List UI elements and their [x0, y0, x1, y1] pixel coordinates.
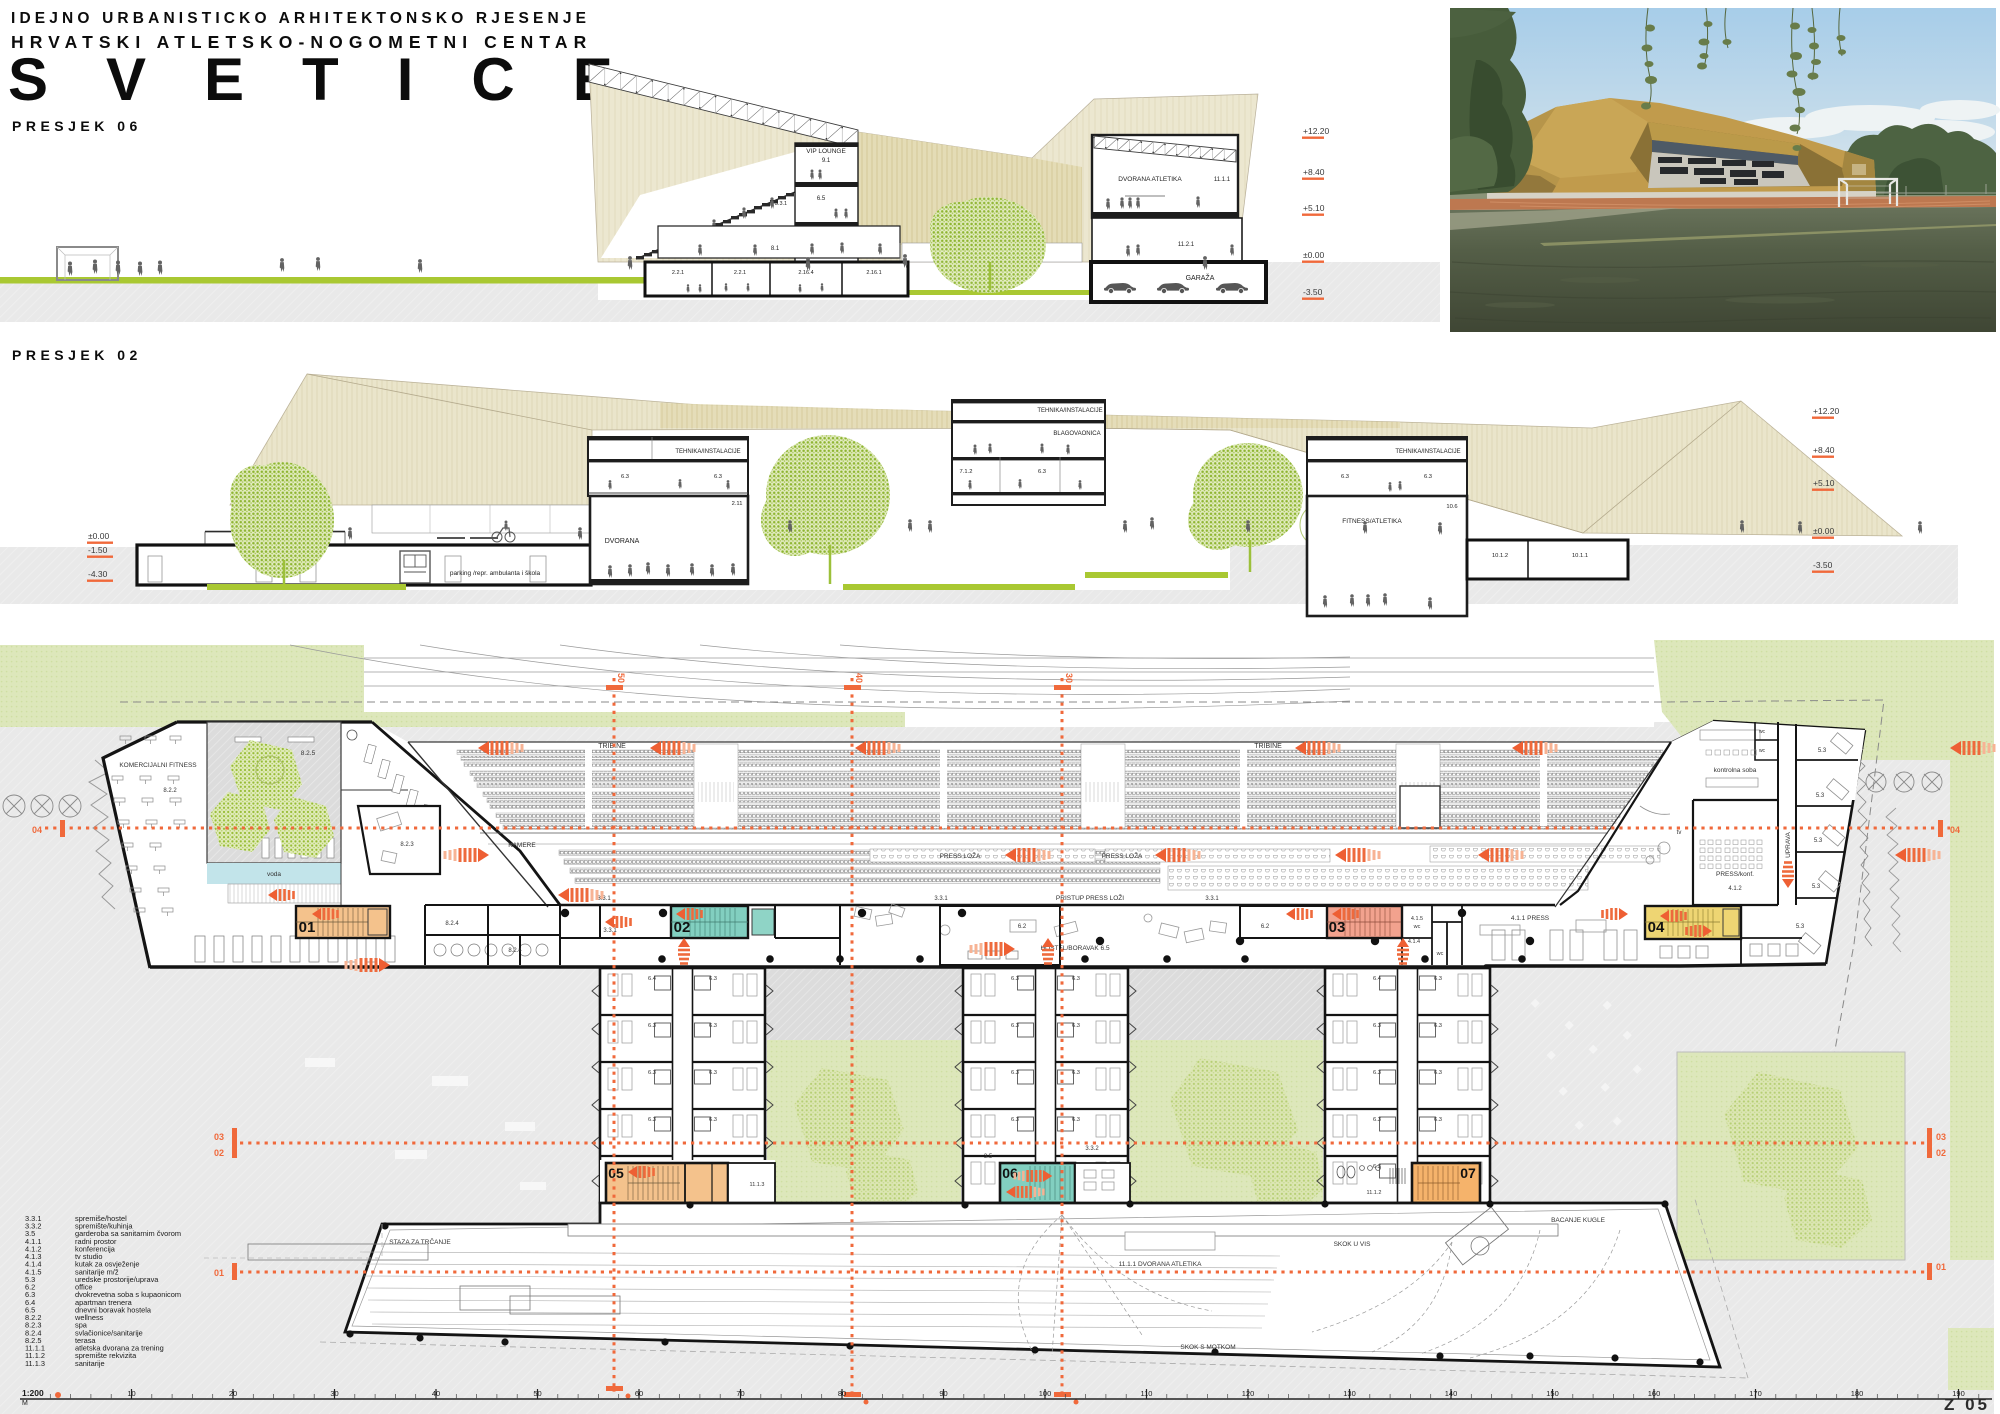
svg-text:2.16.4: 2.16.4 [798, 270, 813, 276]
svg-text:1:200: 1:200 [22, 1388, 44, 1398]
svg-text:KAMERE: KAMERE [508, 842, 536, 849]
svg-text:03: 03 [1936, 1132, 1946, 1142]
svg-text:3.3.1: 3.3.1 [1205, 896, 1219, 902]
svg-text:-4.30: -4.30 [88, 569, 108, 579]
svg-text:3.3.1: 3.3.1 [597, 896, 611, 902]
svg-text:04: 04 [32, 825, 42, 835]
svg-text:IDEJNO URBANISTICKO ARHITEKTON: IDEJNO URBANISTICKO ARHITEKTONSKO RJESEN… [11, 10, 590, 27]
svg-text:M: M [22, 1400, 28, 1407]
svg-text:6.3: 6.3 [1038, 469, 1046, 475]
svg-text:5.3: 5.3 [1818, 748, 1827, 754]
svg-text:6.4: 6.4 [648, 976, 657, 982]
svg-text:150: 150 [1546, 1389, 1559, 1398]
svg-text:6.3: 6.3 [1011, 1117, 1019, 1123]
svg-text:wc: wc [1436, 951, 1444, 957]
svg-text:50: 50 [616, 673, 626, 683]
svg-text:6.3: 6.3 [1072, 976, 1080, 982]
svg-text:+12.20: +12.20 [1813, 406, 1840, 416]
svg-text:6.3: 6.3 [1434, 976, 1442, 982]
svg-text:3.3.2: 3.3.2 [1085, 1146, 1099, 1152]
svg-text:04: 04 [1648, 919, 1665, 936]
svg-text:02: 02 [674, 919, 691, 936]
svg-text:±0.00: ±0.00 [88, 531, 109, 541]
svg-text:80: 80 [838, 1389, 846, 1398]
svg-text:11.1.3: 11.1.3 [25, 1359, 45, 1368]
svg-text:11.1.1: 11.1.1 [1214, 177, 1231, 183]
svg-text:6.3: 6.3 [1373, 1023, 1381, 1029]
svg-text:STAZA ZA TRČANJE: STAZA ZA TRČANJE [389, 1237, 451, 1246]
svg-text:10: 10 [127, 1389, 135, 1398]
svg-text:PRESJEK 06: PRESJEK 06 [12, 118, 142, 134]
svg-text:6.3: 6.3 [709, 976, 717, 982]
svg-text:60: 60 [635, 1389, 643, 1398]
svg-text:UPRAVA: UPRAVA [1785, 831, 1792, 857]
svg-text:05: 05 [608, 1165, 624, 1181]
svg-text:3.5: 3.5 [984, 1154, 993, 1160]
svg-text:3.3.1: 3.3.1 [775, 201, 787, 207]
svg-text:110: 110 [1141, 1389, 1153, 1398]
svg-text:2.11: 2.11 [732, 501, 743, 507]
svg-text:Z 05: Z 05 [1944, 1395, 1990, 1414]
svg-text:6.3: 6.3 [1434, 1117, 1442, 1123]
svg-text:+5.10: +5.10 [1303, 203, 1325, 213]
svg-text:6.5: 6.5 [817, 196, 826, 202]
svg-text:PRISTUP PRESS LOŽI: PRISTUP PRESS LOŽI [1056, 893, 1124, 902]
svg-text:20: 20 [229, 1389, 237, 1398]
svg-text:70: 70 [736, 1389, 744, 1398]
svg-text:4.1.4: 4.1.4 [1408, 939, 1420, 945]
svg-text:5.3: 5.3 [1812, 884, 1821, 890]
svg-text:11.1.3: 11.1.3 [750, 1182, 765, 1188]
svg-text:6.3: 6.3 [1072, 1023, 1080, 1029]
svg-text:wc: wc [1759, 729, 1766, 735]
svg-text:8.2.4: 8.2.4 [508, 948, 522, 954]
svg-text:07: 07 [1460, 1165, 1476, 1181]
svg-text:90: 90 [939, 1389, 947, 1398]
svg-text:6.3: 6.3 [1011, 1070, 1019, 1076]
svg-text:04: 04 [1950, 825, 1960, 835]
svg-text:130: 130 [1343, 1389, 1356, 1398]
svg-text:6.2: 6.2 [1018, 924, 1027, 930]
svg-text:10.1.2: 10.1.2 [1492, 553, 1508, 559]
svg-text:40: 40 [432, 1389, 440, 1398]
svg-text:PRESS/konf.: PRESS/konf. [1716, 871, 1754, 878]
svg-text:6.4: 6.4 [1373, 976, 1382, 982]
svg-text:6.3: 6.3 [648, 1117, 656, 1123]
svg-text:DVORANA ATLETIKA: DVORANA ATLETIKA [1118, 176, 1182, 183]
svg-text:5.3: 5.3 [1814, 838, 1823, 844]
svg-text:PRESS LOŽA: PRESS LOŽA [940, 851, 981, 860]
svg-text:BACANJE KUGLE: BACANJE KUGLE [1551, 1217, 1605, 1224]
svg-text:TEHNIKA/INSTALACIJE: TEHNIKA/INSTALACIJE [1395, 449, 1460, 455]
svg-text:TRIBINE: TRIBINE [598, 743, 626, 750]
svg-text:6.3: 6.3 [1373, 1117, 1381, 1123]
svg-text:6.3: 6.3 [648, 1070, 656, 1076]
svg-text:FITNESS/ATLETIKA: FITNESS/ATLETIKA [1342, 518, 1402, 525]
svg-text:+8.40: +8.40 [1813, 445, 1835, 455]
svg-text:DVORANA: DVORANA [605, 538, 640, 545]
svg-text:10.1.1: 10.1.1 [1572, 553, 1588, 559]
svg-text:11.1.2: 11.1.2 [1367, 1190, 1382, 1196]
svg-text:100: 100 [1039, 1389, 1052, 1398]
svg-text:140: 140 [1445, 1389, 1458, 1398]
svg-text:30: 30 [330, 1389, 338, 1398]
svg-text:02: 02 [214, 1148, 224, 1158]
svg-text:6.2: 6.2 [1261, 924, 1270, 930]
svg-text:KOMERCIJALNI FITNESS: KOMERCIJALNI FITNESS [119, 762, 197, 769]
svg-text:TEHNIKA/INSTALACIJE: TEHNIKA/INSTALACIJE [675, 449, 740, 455]
svg-text:6.3: 6.3 [709, 1023, 717, 1029]
svg-text:+8.40: +8.40 [1303, 167, 1325, 177]
svg-text:7.1.2: 7.1.2 [960, 469, 973, 475]
svg-text:+5.10: +5.10 [1813, 478, 1835, 488]
svg-text:voda: voda [267, 871, 281, 878]
svg-text:01: 01 [299, 919, 316, 936]
svg-text:4.1.2: 4.1.2 [1728, 886, 1742, 892]
svg-text:±0.00: ±0.00 [1303, 250, 1324, 260]
svg-text:kontrolna soba: kontrolna soba [1714, 767, 1757, 774]
svg-text:BLAGOVAONICA: BLAGOVAONICA [1053, 431, 1100, 437]
svg-text:6.3: 6.3 [714, 474, 722, 480]
svg-text:SKOK S MOTKOM: SKOK S MOTKOM [1180, 1344, 1235, 1351]
svg-text:6.3: 6.3 [1341, 474, 1349, 480]
svg-text:6.3: 6.3 [1434, 1023, 1442, 1029]
svg-text:VIP LOUNGE: VIP LOUNGE [806, 148, 846, 155]
svg-text:6.3: 6.3 [1424, 474, 1432, 480]
svg-text:01: 01 [1936, 1262, 1946, 1272]
svg-text:6.3: 6.3 [709, 1117, 717, 1123]
svg-text:6.3: 6.3 [1011, 1023, 1019, 1029]
svg-text:03: 03 [1329, 919, 1346, 936]
svg-text:170: 170 [1749, 1389, 1762, 1398]
svg-text:9.1: 9.1 [822, 158, 831, 164]
svg-text:6.3: 6.3 [1072, 1070, 1080, 1076]
svg-text:8.2.3: 8.2.3 [400, 842, 414, 848]
svg-text:±0.00: ±0.00 [1813, 526, 1834, 536]
svg-text:6.3: 6.3 [1434, 1070, 1442, 1076]
svg-text:6.3: 6.3 [709, 1070, 717, 1076]
svg-text:40: 40 [854, 673, 864, 683]
svg-text:tv: tv [1677, 830, 1682, 836]
svg-text:160: 160 [1648, 1389, 1661, 1398]
svg-text:wc: wc [1413, 924, 1421, 930]
svg-text:parking /repr. ambulanta i ško: parking /repr. ambulanta i škola [450, 570, 541, 577]
svg-text:-3.50: -3.50 [1303, 287, 1323, 297]
svg-text:5.3: 5.3 [1796, 924, 1805, 930]
svg-text:SVETICE: SVETICE [8, 46, 671, 113]
svg-text:GARAŽA: GARAŽA [1186, 273, 1215, 282]
svg-text:6.3: 6.3 [1373, 1070, 1381, 1076]
svg-text:-3.50: -3.50 [1813, 560, 1833, 570]
svg-text:4.1.1 PRESS: 4.1.1 PRESS [1511, 915, 1550, 922]
svg-text:6.3: 6.3 [1072, 1117, 1080, 1123]
svg-text:-1.50: -1.50 [88, 545, 108, 555]
svg-text:TRIBINE: TRIBINE [1254, 743, 1282, 750]
svg-text:11.1.1 DVORANA ATLETIKA: 11.1.1 DVORANA ATLETIKA [1119, 1261, 1203, 1268]
svg-text:2.2.1: 2.2.1 [734, 270, 746, 276]
svg-text:+12.20: +12.20 [1303, 126, 1330, 136]
svg-text:8.2.5: 8.2.5 [301, 750, 316, 757]
svg-text:8.1: 8.1 [771, 246, 780, 252]
svg-text:02: 02 [1936, 1148, 1946, 1158]
svg-text:2.2.1: 2.2.1 [672, 270, 684, 276]
svg-text:3.3.1: 3.3.1 [934, 896, 948, 902]
svg-text:TEHNIKA/INSTALACIJE: TEHNIKA/INSTALACIJE [1037, 408, 1102, 414]
svg-text:11.2.1: 11.2.1 [1178, 242, 1195, 248]
svg-text:180: 180 [1851, 1389, 1864, 1398]
svg-text:8.2.2: 8.2.2 [163, 788, 177, 794]
svg-text:03: 03 [214, 1132, 224, 1142]
svg-text:SKOK U VIS: SKOK U VIS [1334, 1241, 1372, 1248]
svg-text:wc: wc [1759, 748, 1766, 754]
svg-text:6.3: 6.3 [1011, 976, 1019, 982]
svg-text:120: 120 [1242, 1389, 1255, 1398]
svg-text:01: 01 [214, 1268, 224, 1278]
svg-text:PRESS LOŽA: PRESS LOŽA [1102, 851, 1143, 860]
svg-text:4.1.5: 4.1.5 [1411, 916, 1423, 922]
svg-text:5.3: 5.3 [1816, 793, 1825, 799]
svg-text:10.6: 10.6 [1446, 504, 1457, 510]
svg-text:50: 50 [533, 1389, 541, 1398]
svg-text:2.16.1: 2.16.1 [866, 270, 881, 276]
svg-text:30: 30 [1064, 673, 1074, 683]
svg-text:8.2.4: 8.2.4 [445, 921, 459, 927]
svg-text:sanitarije: sanitarije [75, 1359, 105, 1368]
svg-text:6.3: 6.3 [621, 474, 629, 480]
svg-text:6.3: 6.3 [648, 1023, 656, 1029]
svg-text:PRESJEK 02: PRESJEK 02 [12, 347, 142, 363]
